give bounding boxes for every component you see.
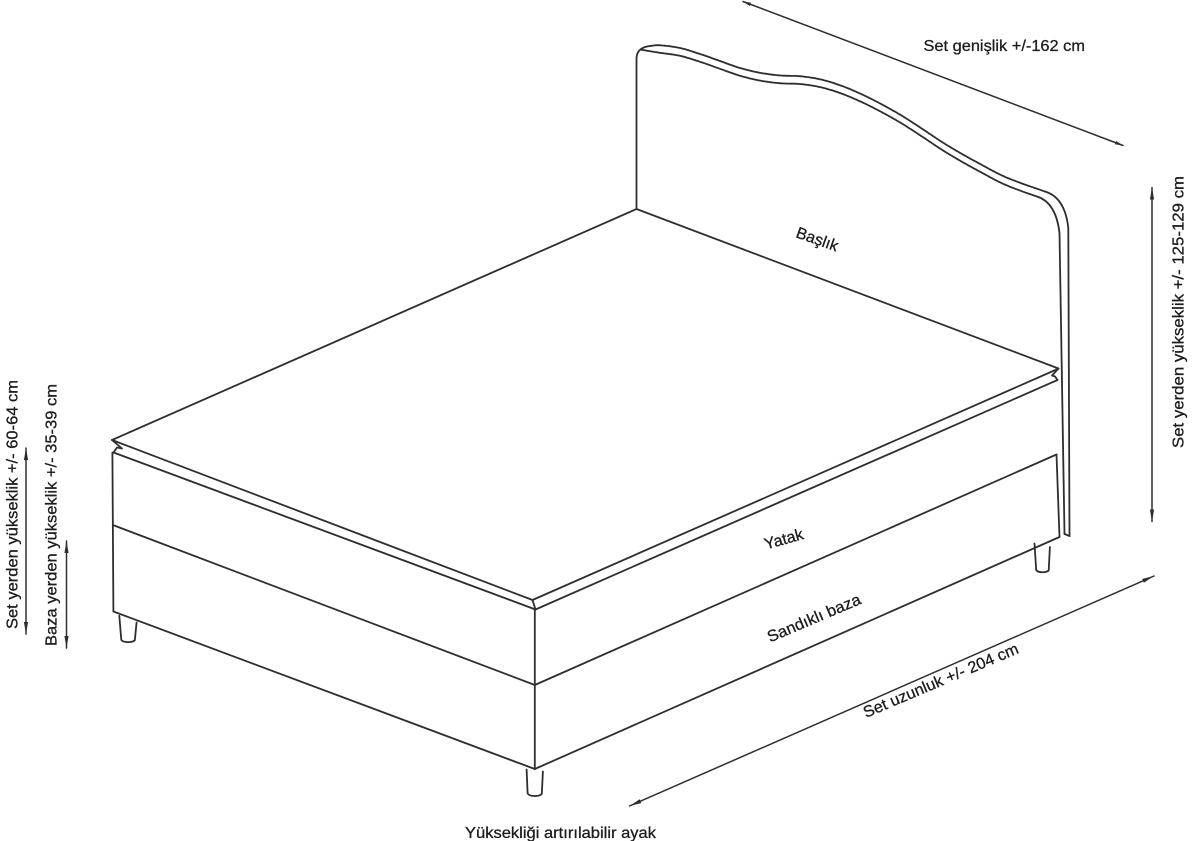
- svg-text:Set genişlik +/-162 cm: Set genişlik +/-162 cm: [924, 38, 1086, 55]
- svg-text:Yüksekliği artırılabilir ayak: Yüksekliği artırılabilir ayak: [465, 825, 657, 841]
- svg-text:Baza yerden yükseklik +/- 35-3: Baza yerden yükseklik +/- 35-39 cm: [44, 384, 61, 646]
- svg-text:Set yerden yükseklik +/- 60-64: Set yerden yükseklik +/- 60-64 cm: [5, 380, 22, 629]
- svg-text:Set yerden yükseklik +/- 125-1: Set yerden yükseklik +/- 125-129 cm: [1171, 176, 1188, 448]
